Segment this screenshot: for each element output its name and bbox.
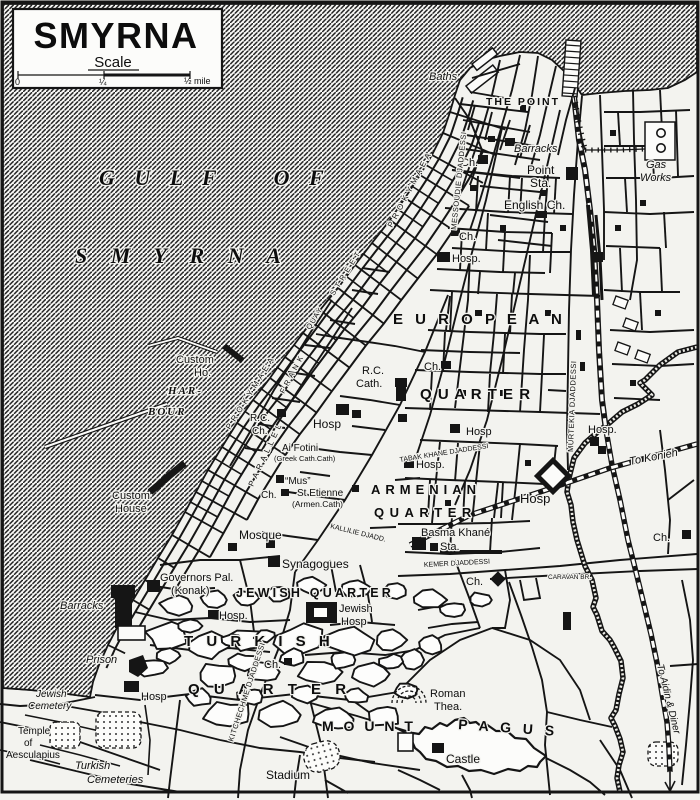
svg-text:Aesculapius: Aesculapius xyxy=(6,750,60,761)
svg-text:CARAVAN BR.: CARAVAN BR. xyxy=(548,574,591,581)
svg-text:Mosque: Mosque xyxy=(239,528,282,542)
svg-text:Baths: Baths xyxy=(429,71,458,83)
svg-text:HAR-: HAR- xyxy=(167,385,203,397)
svg-text:Hosp.: Hosp. xyxy=(588,424,617,436)
svg-text:Hosp: Hosp xyxy=(341,616,367,628)
svg-text:BOUR: BOUR xyxy=(147,406,187,418)
svg-text:Ch.: Ch. xyxy=(264,659,281,671)
svg-text:Ch.: Ch. xyxy=(252,426,268,437)
svg-text:Jewish: Jewish xyxy=(35,689,67,700)
svg-text:Barracks: Barracks xyxy=(514,143,558,155)
svg-text:(Konak): (Konak) xyxy=(171,585,210,597)
svg-text:Ho.: Ho. xyxy=(194,367,211,379)
svg-text:Ch.: Ch. xyxy=(466,576,483,588)
svg-text:Ch.: Ch. xyxy=(459,231,476,243)
svg-text:Cath.: Cath. xyxy=(356,378,382,390)
svg-text:½ mile: ½ mile xyxy=(184,76,211,86)
svg-text:Scale: Scale xyxy=(94,54,132,71)
svg-text:Hosp.: Hosp. xyxy=(219,610,248,622)
svg-text:M O U N T: M O U N T xyxy=(322,718,416,734)
svg-text:Prison: Prison xyxy=(86,654,117,666)
svg-text:Sta.: Sta. xyxy=(440,541,460,553)
svg-text:Cemeteries: Cemeteries xyxy=(87,774,144,786)
svg-text:Q U A R T E R: Q U A R T E R xyxy=(188,681,351,698)
svg-text:English Ch.: English Ch. xyxy=(504,198,565,212)
svg-text:Point: Point xyxy=(527,163,555,177)
svg-text:Hosp: Hosp xyxy=(466,426,492,438)
svg-text:QUARTER: QUARTER xyxy=(374,505,477,520)
svg-text:Stadium: Stadium xyxy=(266,768,310,782)
svg-text:Castle: Castle xyxy=(446,752,480,766)
svg-text:THE POINT: THE POINT xyxy=(486,96,560,108)
svg-text:E U R O P E A N: E U R O P E A N xyxy=(393,311,566,328)
svg-text:(Armen.Cath): (Armen.Cath) xyxy=(292,499,343,509)
svg-text:0: 0 xyxy=(15,77,20,87)
svg-text:Temple: Temple xyxy=(18,726,51,737)
svg-text:Turkish: Turkish xyxy=(75,760,110,772)
svg-text:Hosp: Hosp xyxy=(141,691,167,703)
svg-text:R.C.: R.C. xyxy=(362,365,384,377)
svg-text:Q U A R T E R: Q U A R T E R xyxy=(420,386,531,403)
svg-text:Ch.: Ch. xyxy=(261,490,277,501)
svg-text:Custom: Custom xyxy=(112,490,150,502)
svg-text:R.C.: R.C. xyxy=(250,413,270,424)
svg-text:Hosp: Hosp xyxy=(520,491,550,506)
svg-text:JEWISH QUARTER: JEWISH QUARTER xyxy=(236,586,394,600)
svg-text:Thea.: Thea. xyxy=(434,701,462,713)
svg-text:G U L F O F: G U L F O F xyxy=(99,165,331,190)
svg-text:Ch.: Ch. xyxy=(653,532,670,544)
svg-text:¼: ¼ xyxy=(99,77,107,87)
svg-text:Works: Works xyxy=(640,172,672,184)
svg-text:Roman: Roman xyxy=(430,688,465,700)
svg-text:Ch.: Ch. xyxy=(424,361,441,373)
svg-text:Cemetery: Cemetery xyxy=(28,701,72,712)
svg-text:Jewish: Jewish xyxy=(339,603,373,615)
svg-text:St Etienne: St Etienne xyxy=(297,488,344,499)
svg-text:of: of xyxy=(24,738,33,749)
svg-text:Hosp.: Hosp. xyxy=(452,253,481,265)
svg-text:Gas: Gas xyxy=(646,159,667,171)
svg-text:(Greek Cath.Cath): (Greek Cath.Cath) xyxy=(274,454,336,463)
svg-text:Sta.: Sta. xyxy=(530,176,551,190)
svg-text:Basma Khané: Basma Khané xyxy=(421,527,490,539)
svg-text:Hosp: Hosp xyxy=(313,417,341,431)
svg-text:ARMENIAN: ARMENIAN xyxy=(371,482,481,497)
svg-text:Synagogues: Synagogues xyxy=(282,557,349,571)
svg-text:SMYRNA: SMYRNA xyxy=(33,15,198,56)
svg-text:Custom: Custom xyxy=(176,354,214,366)
svg-text:Governors Pal.: Governors Pal. xyxy=(160,572,233,584)
svg-text:Ai Fotini: Ai Fotini xyxy=(282,443,318,454)
svg-text:“Mus”: “Mus” xyxy=(285,476,311,487)
svg-text:Barracks: Barracks xyxy=(60,600,104,612)
svg-text:House: House xyxy=(115,503,147,515)
svg-text:S M Y R N A: S M Y R N A xyxy=(75,243,290,268)
